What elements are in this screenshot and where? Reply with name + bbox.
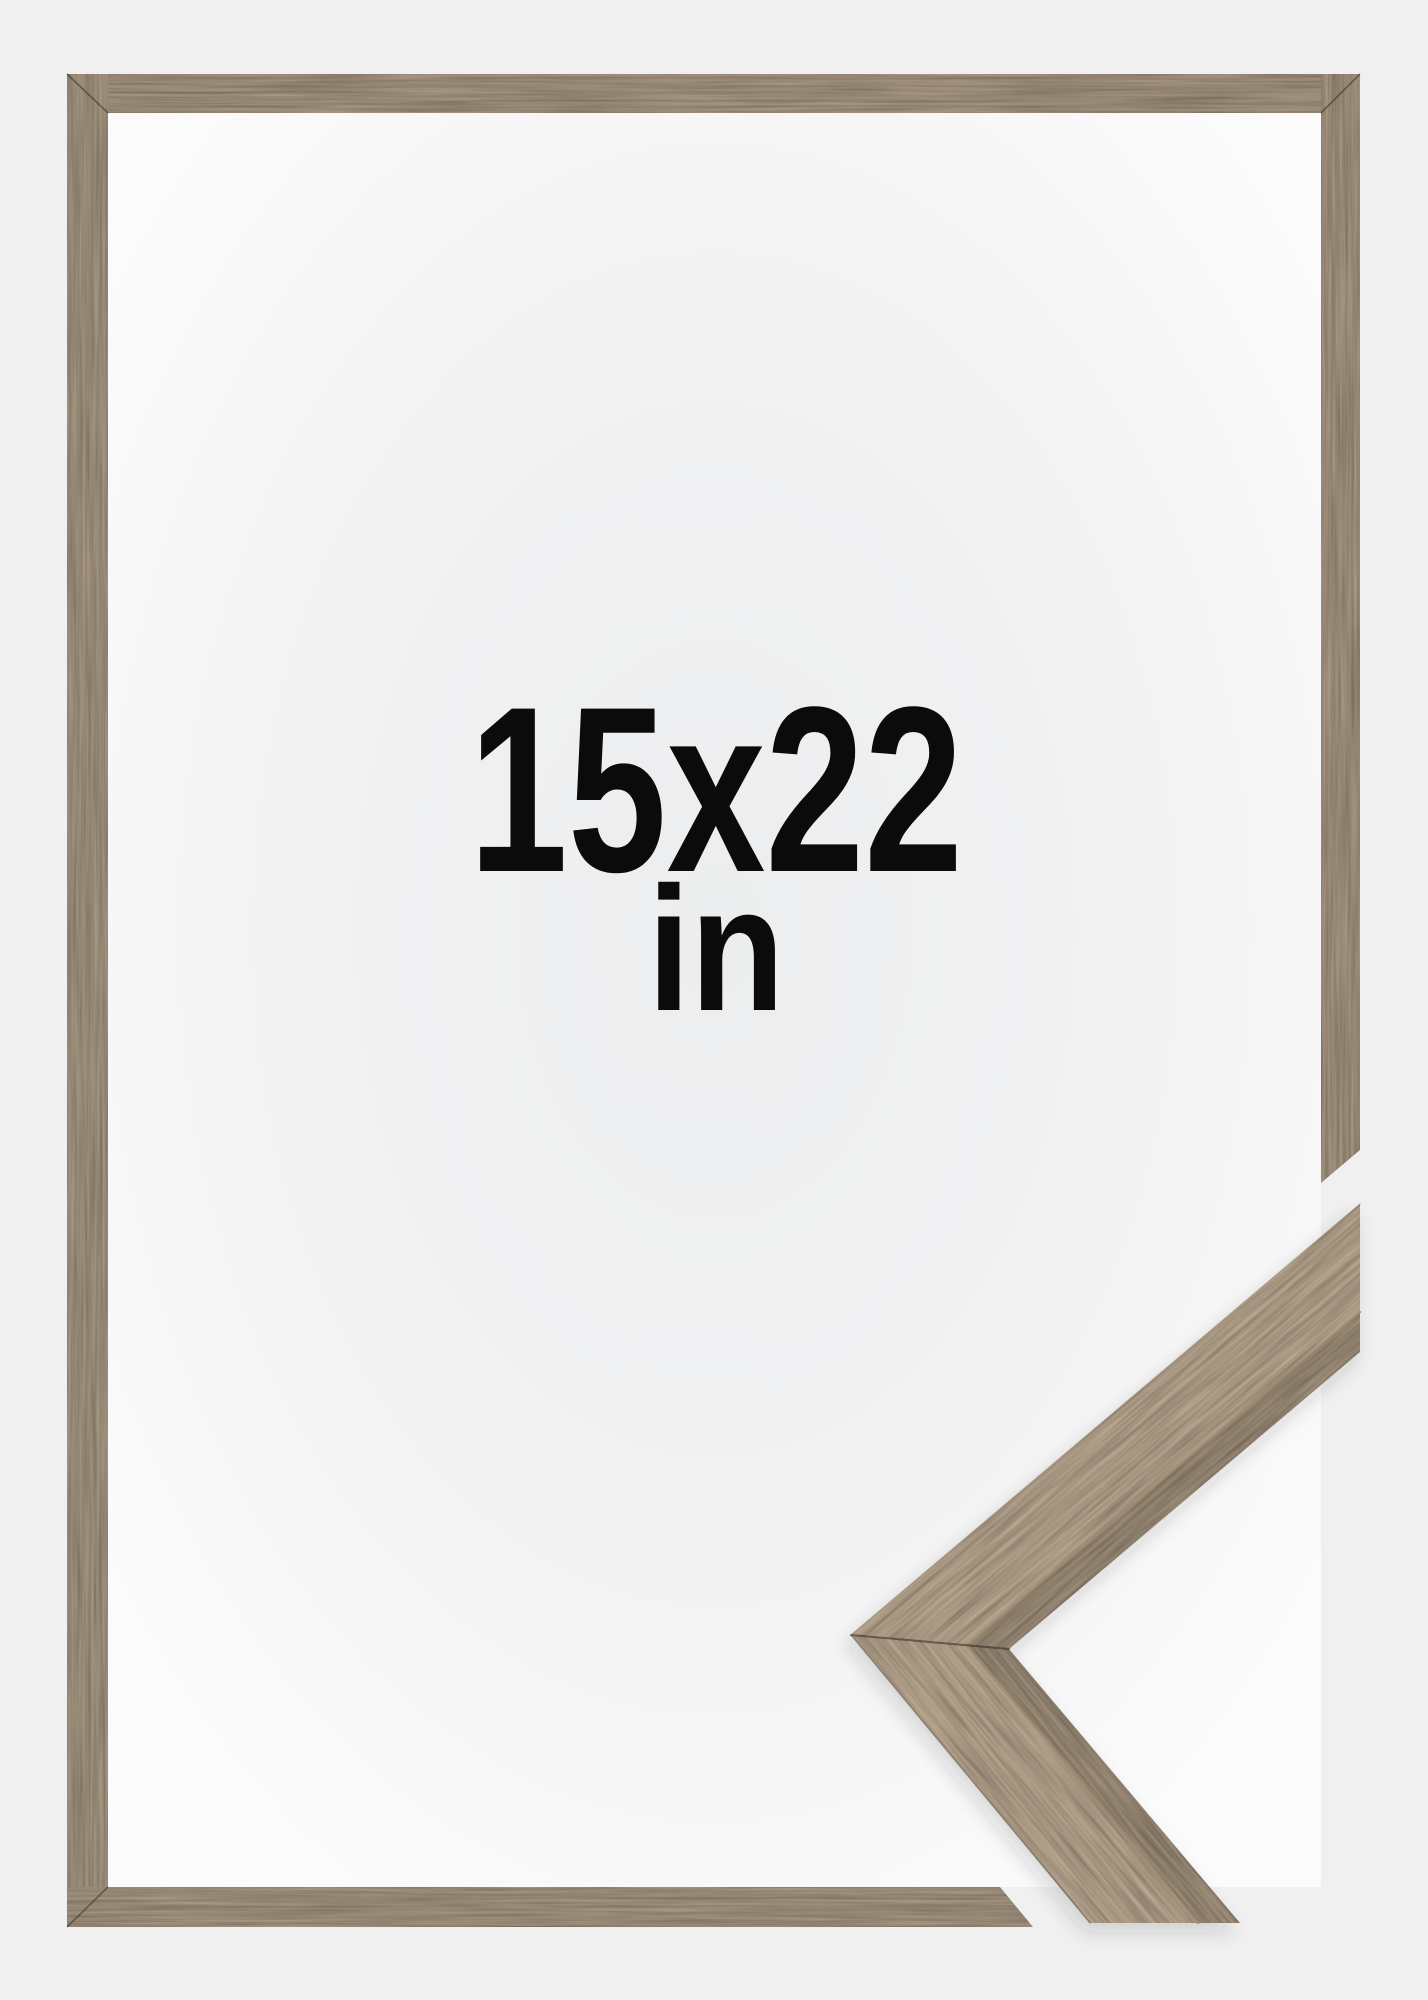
frame-product-image: 15x22 in <box>0 0 1428 2000</box>
frame-bottom-bar <box>59 1879 1043 1935</box>
frame-product-canvas: 15x22 in <box>0 0 1428 2000</box>
unit-label: in <box>648 850 785 1048</box>
